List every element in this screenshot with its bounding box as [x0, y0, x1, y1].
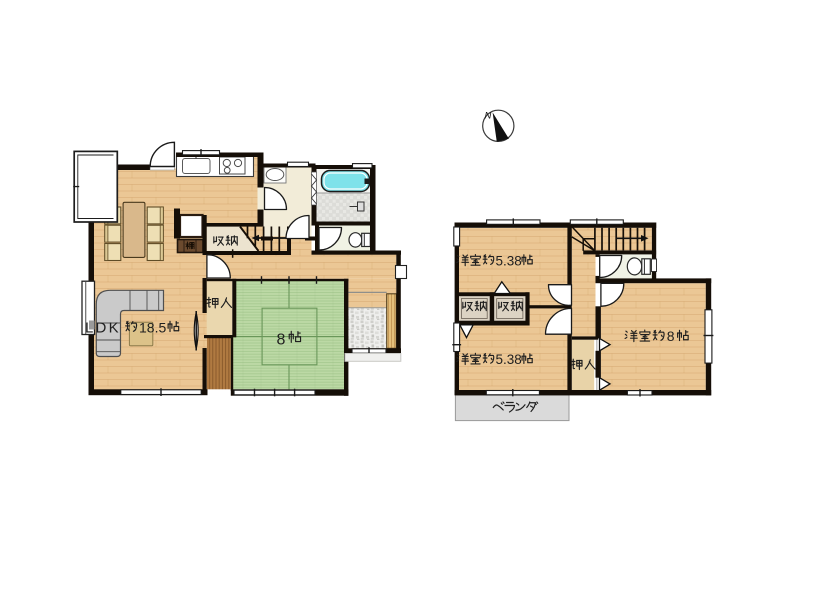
svg-text:18.5: 18.5 — [139, 320, 166, 336]
svg-text:8: 8 — [277, 332, 286, 349]
svg-text:N: N — [485, 111, 492, 122]
svg-text:5.38: 5.38 — [496, 352, 522, 367]
svg-text:8: 8 — [667, 328, 675, 344]
svg-text:LDK: LDK — [85, 320, 121, 337]
svg-text:5.38: 5.38 — [496, 253, 522, 268]
